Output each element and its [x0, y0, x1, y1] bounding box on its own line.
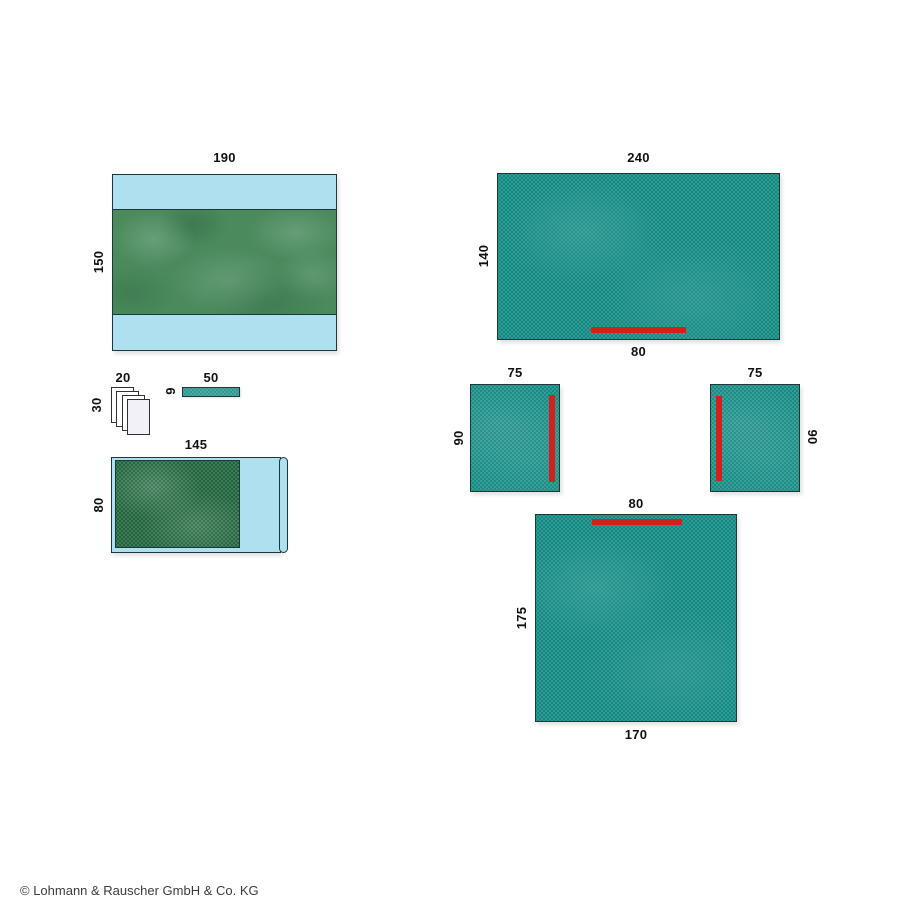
large-drape-width-label: 240 [497, 151, 780, 165]
bottom-drape-height-label: 175 [515, 607, 529, 630]
wrap-drape-width-label: 190 [112, 151, 337, 165]
wrap-drape-fabric [113, 209, 336, 315]
side-drape-left-width-label: 75 [470, 366, 560, 380]
side-drape-left-height-label: 90 [452, 430, 466, 445]
table-cover-width-label: 145 [111, 438, 281, 452]
swab-stack-height-label: 30 [90, 397, 104, 412]
table-cover-height-label: 80 [92, 497, 106, 512]
large-drape-height-label: 140 [477, 245, 491, 268]
tape-strip-height-label: 9 [164, 387, 178, 395]
large-drape-adhesive-label: 80 [497, 345, 780, 359]
bottom-drape-adhesive-label: 80 [535, 497, 737, 511]
swab-sheet [127, 399, 150, 435]
bottom-drape [535, 514, 737, 722]
side-drape-left-adhesive-strip [549, 395, 555, 482]
side-drape-left [470, 384, 560, 492]
large-drape-adhesive-strip [591, 327, 686, 333]
wrap-drape-bottom-band [113, 315, 336, 350]
side-drape-right-width-label: 75 [710, 366, 800, 380]
diagram-canvas: 190 150 20 30 50 9 145 80 240 140 80 75 … [0, 0, 918, 918]
wrap-drape-height-label: 150 [92, 251, 106, 274]
wrap-drape [112, 174, 337, 351]
wrap-drape-layers [113, 175, 336, 350]
bottom-drape-width-label: 170 [535, 728, 737, 742]
table-cover-rolled-edge [279, 457, 288, 553]
large-drape [497, 173, 780, 340]
tape-strip [182, 387, 240, 397]
bottom-drape-adhesive-strip [592, 519, 682, 525]
tape-strip-width-label: 50 [182, 371, 240, 385]
copyright-text: © Lohmann & Rauscher GmbH & Co. KG [20, 883, 259, 898]
side-drape-right-adhesive-strip [716, 396, 722, 481]
table-cover [111, 457, 281, 553]
table-cover-absorbent-area [115, 460, 240, 548]
side-drape-right-height-label: 90 [805, 429, 819, 444]
side-drape-right [710, 384, 800, 492]
swab-stack [111, 387, 151, 436]
wrap-drape-top-band [113, 175, 336, 209]
swab-stack-width-label: 20 [109, 371, 137, 385]
